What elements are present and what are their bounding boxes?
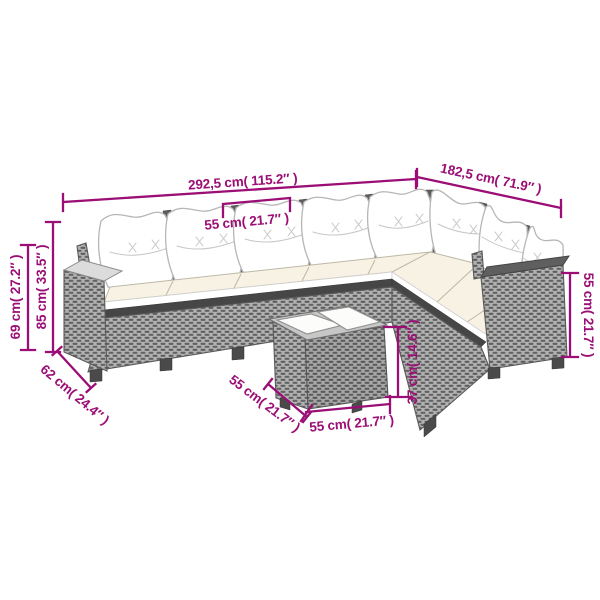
dimension-height-with-cushions: 85 cm( 33.5″ )	[34, 222, 60, 352]
dimension-label-right-width: 182,5 cm( 71.9″ )	[439, 161, 543, 197]
dimension-label-height-69: 69 cm( 27.2″ )	[8, 255, 23, 340]
dimension-label-right-height: 55 cm( 21.7″ )	[581, 273, 596, 358]
dimension-right-height: 55 cm( 21.7″ )	[562, 273, 596, 358]
dimension-height-backrest: 69 cm( 27.2″ )	[8, 245, 35, 350]
dimension-line	[21, 245, 35, 350]
dimension-label-height-85: 85 cm( 33.5″ )	[34, 245, 49, 330]
coffee-table	[269, 306, 388, 413]
dimension-label-table-height: 37 cm( 14.6″ )	[405, 320, 420, 405]
dimension-label-table-width: 55 cm( 21.7″ )	[309, 412, 395, 434]
sofa-set-illustration: 292,5 cm( 115.2″ ) 182,5 cm( 71.9″ ) 55 …	[0, 0, 600, 600]
product-dimension-diagram: 292,5 cm( 115.2″ ) 182,5 cm( 71.9″ ) 55 …	[0, 0, 600, 600]
